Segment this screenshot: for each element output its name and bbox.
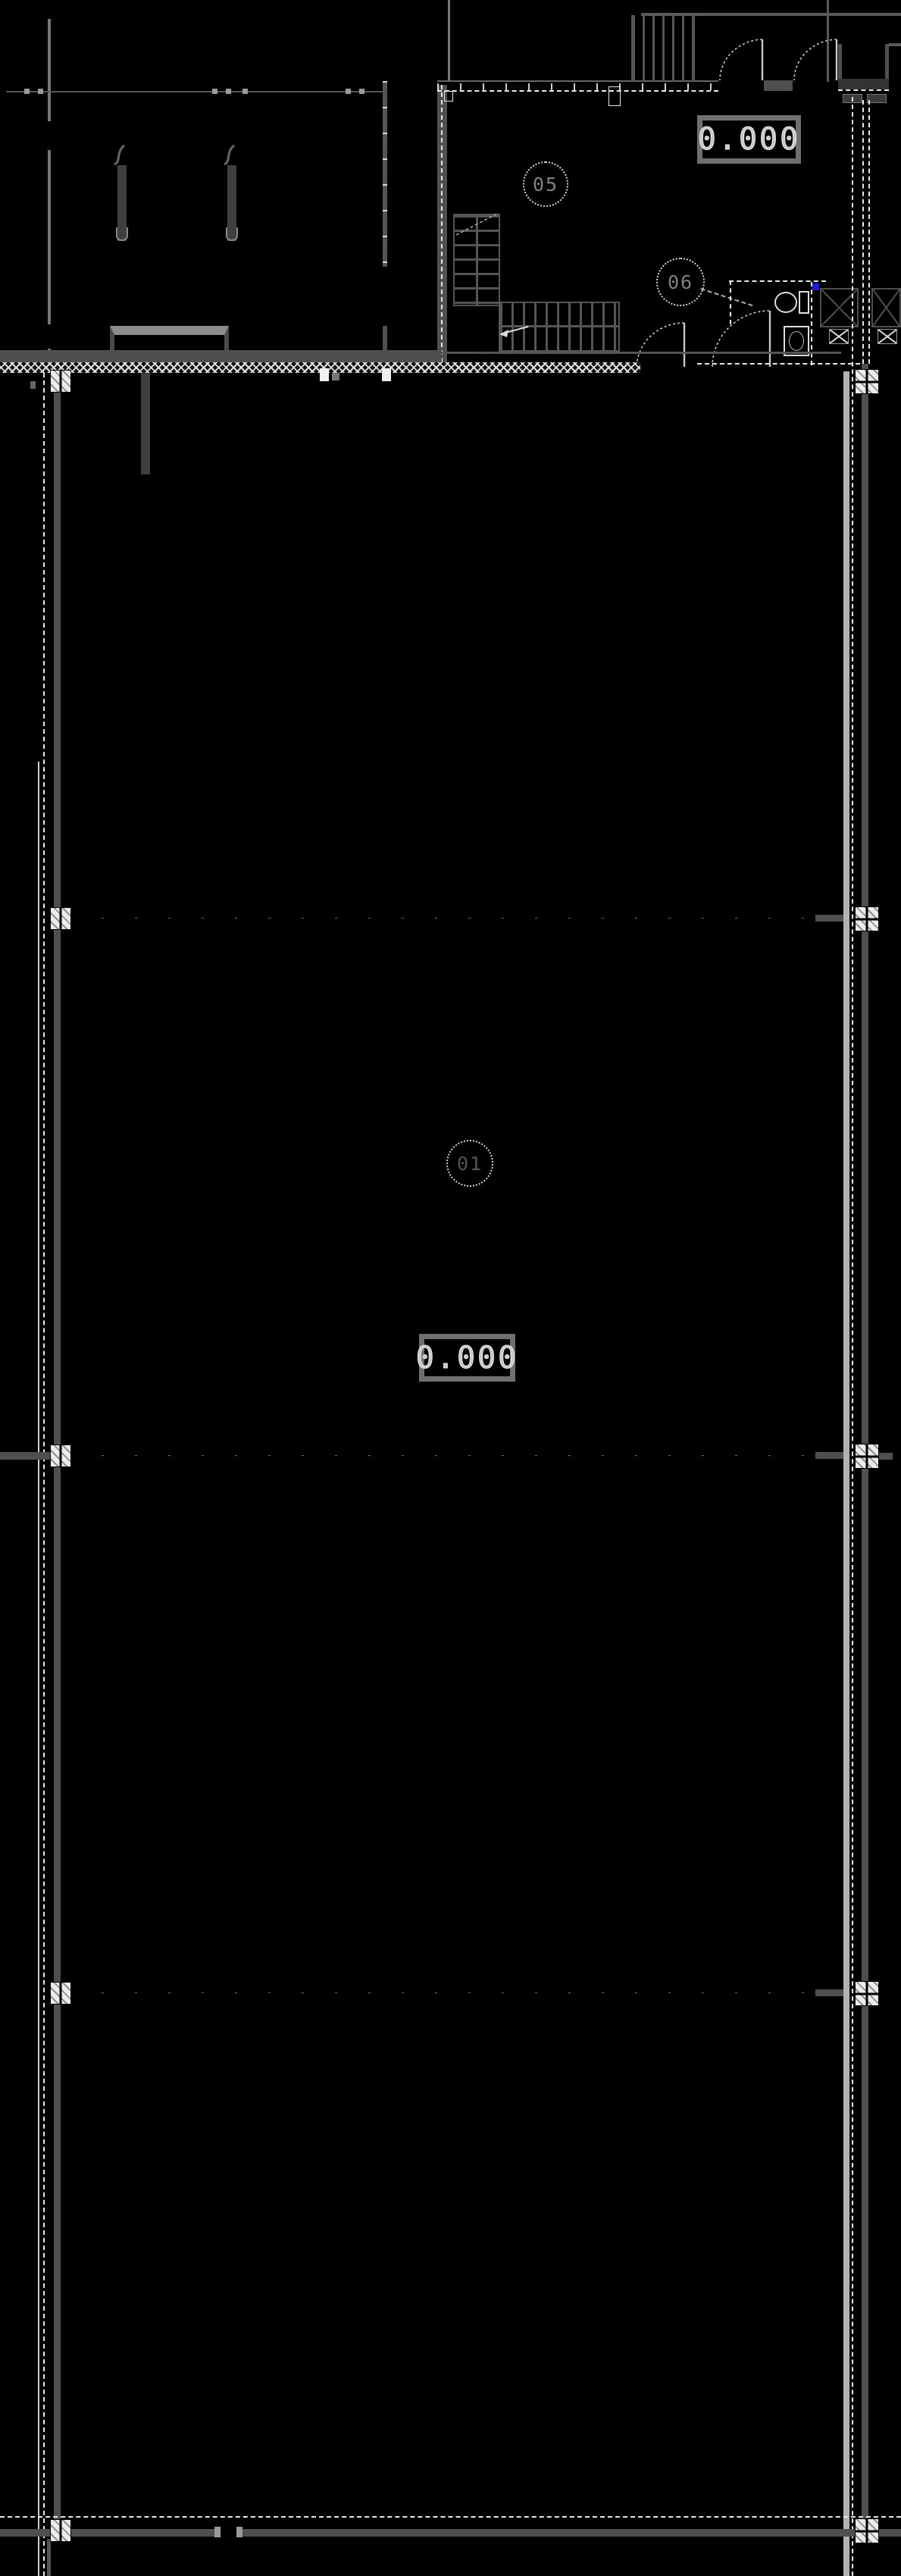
bottom-wall-left: [0, 2529, 216, 2537]
row3-left-wall-stub: [0, 1452, 54, 1460]
railing-post: [38, 89, 43, 94]
top-boundary-line: [641, 13, 901, 16]
elevation-marker-hall: 0.000: [419, 1334, 515, 1382]
room-tag-01: 01: [446, 1140, 493, 1187]
terrace-railing: [6, 91, 385, 92]
door-arc: [720, 39, 762, 80]
grid-row-line-2: [68, 918, 841, 919]
lobby-partition-wall: [437, 85, 447, 362]
right-grid-line-dashed: [852, 97, 853, 2576]
column-right-1: [855, 369, 879, 394]
left-wall-continuation: [47, 2539, 51, 2576]
break-line: [456, 214, 497, 235]
column-right-2: [855, 906, 879, 931]
railing-post: [359, 89, 364, 94]
top-window-wall: [437, 80, 718, 92]
hall-top-wall-band: [0, 350, 442, 362]
valve-mark: [829, 329, 849, 344]
sink-basin: [789, 331, 804, 351]
door-swing-hall: [635, 321, 687, 370]
railing-post: [212, 89, 217, 94]
railing-post: [226, 89, 231, 94]
room-number: 06: [668, 271, 693, 293]
hall-top-wall-line: [442, 352, 841, 354]
elevation-marker-entrance: 0.000: [697, 115, 801, 164]
right-inner-stub: [815, 1989, 843, 1996]
entrance-door-jamb: [382, 368, 391, 381]
column-right-4: [855, 1981, 879, 2006]
window-mullion-ticks: [437, 83, 718, 90]
railing-post: [24, 89, 30, 94]
column-left-3: [50, 1445, 71, 1467]
toilet-tank: [799, 291, 809, 314]
elevation-value: 0.000: [698, 122, 800, 157]
entrance-top-line: [889, 43, 901, 46]
column-left-5: [50, 2519, 71, 2542]
wall-pier: [444, 91, 453, 102]
column-left-1: [50, 370, 71, 393]
bottom-door-jamb: [236, 2527, 242, 2537]
grid-row-line-3: [68, 1455, 841, 1456]
entrance-door-stop: [332, 373, 339, 380]
shaft-box: [871, 288, 901, 327]
row3-right-wall-stub: [879, 1453, 893, 1460]
arrow-shaft: [505, 327, 528, 333]
hall-top-wall-dash-right: [697, 363, 860, 365]
column-left-2: [50, 907, 71, 930]
squiggle-path: [114, 146, 124, 164]
interior-ramp-strip: [141, 373, 150, 474]
window-wall-inner-dash: [437, 90, 718, 92]
toilet-bowl: [774, 292, 797, 313]
downpipe-squiggle-icon: [112, 141, 135, 167]
bottom-wall-right: [242, 2529, 901, 2537]
entrance-door-jamb: [320, 368, 329, 381]
wall-pier: [608, 86, 621, 106]
squiggle-path: [224, 146, 234, 164]
door-arc: [712, 311, 770, 367]
left-outer-line: [38, 762, 39, 2576]
door-pier-wall: [764, 80, 793, 91]
right-inner-stub: [815, 915, 843, 922]
terrace-left-wall-upper: [48, 19, 51, 121]
terrace-left-wall-mid: [48, 150, 51, 324]
downpipe-hook: [226, 227, 238, 241]
railing-post: [242, 89, 248, 94]
exterior-stair-top: [631, 15, 695, 82]
stair-break-line: [455, 211, 500, 236]
railing-post: [346, 89, 351, 94]
right-exterior-wall-dash-outer: [862, 100, 864, 364]
grid-line-vertical-top: [448, 0, 450, 82]
column-left-4: [50, 1982, 71, 2005]
room-number: 01: [457, 1153, 483, 1175]
room-tag-06: 06: [656, 258, 705, 306]
door-swing-bathroom: [711, 309, 771, 368]
room-tag-05: 05: [523, 161, 568, 207]
downpipe-squiggle-icon: [222, 141, 245, 167]
right-light-band: [843, 371, 849, 2576]
entrance-threshold-fill: [838, 79, 889, 89]
tag-leader-line: [700, 288, 752, 306]
lobby-wall-glazing-dash: [441, 85, 443, 362]
door-swing-2: [793, 38, 840, 82]
door-arc: [794, 39, 837, 80]
valve-mark: [878, 329, 897, 344]
floor-plan-canvas: 0.000 05 06: [0, 0, 901, 2576]
left-grid-line-dashed: [43, 373, 45, 2576]
entrance-threshold-dash: [838, 89, 889, 91]
right-exterior-wall-dash-inner: [868, 100, 870, 364]
terrace-right-glazed-wall: [383, 81, 387, 267]
column-right-5: [855, 2518, 879, 2543]
wall-tick: [30, 381, 36, 389]
stair-direction-arrow: [496, 322, 531, 339]
elevation-value: 0.000: [416, 1341, 518, 1376]
plumbing-point-blue: [812, 283, 819, 290]
room-number: 05: [533, 174, 558, 196]
downpipe-hook: [116, 227, 128, 241]
right-inner-stub: [815, 1452, 843, 1459]
door-arc: [637, 323, 684, 368]
column-right-3: [855, 1444, 879, 1469]
door-swing-1: [718, 38, 765, 82]
toilet: [774, 290, 811, 315]
bottom-grid-line-dashed: [0, 2516, 901, 2518]
arrow-head: [499, 330, 508, 337]
bottom-door-jamb: [214, 2527, 221, 2537]
grid-row-line-4: [68, 1992, 841, 1993]
